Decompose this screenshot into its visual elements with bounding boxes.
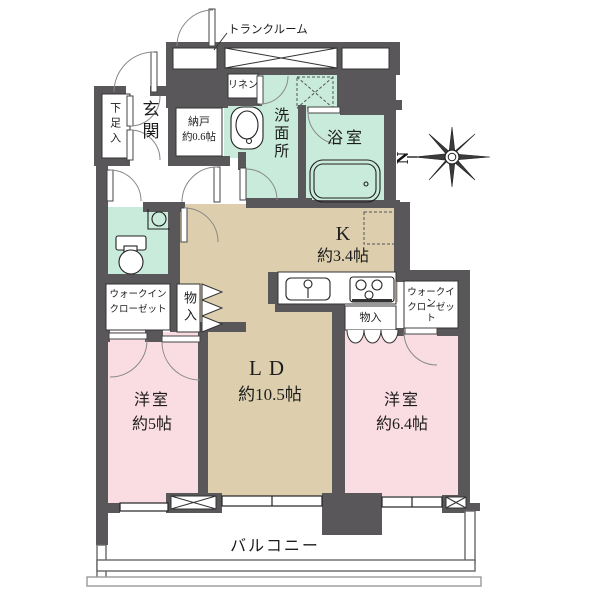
wic-left-label-1: ウォークイン bbox=[106, 290, 170, 301]
bathroom-floor bbox=[304, 110, 386, 206]
entry-door-leaf bbox=[151, 52, 157, 92]
wic-right-label-2: クローゼット bbox=[404, 303, 458, 325]
storage-room-label: 納戸 bbox=[176, 116, 222, 129]
closet-left-label: 物入 bbox=[181, 291, 196, 325]
trunk-room-label: トランクルーム bbox=[228, 24, 308, 37]
living-dining-label: LD bbox=[218, 356, 322, 380]
pillar bbox=[322, 493, 382, 535]
bedroom-right-floor bbox=[344, 328, 460, 496]
floor-plan-drawing: N bbox=[0, 0, 600, 600]
bathroom-label: 浴室 bbox=[316, 130, 376, 148]
kitchen-size: 約3.4帖 bbox=[303, 248, 383, 266]
compass-icon: N bbox=[393, 127, 490, 187]
living-dining-size: 約10.5帖 bbox=[208, 385, 332, 405]
trunk-door-leaf bbox=[209, 9, 215, 46]
genkan-label: 玄関 bbox=[139, 100, 159, 144]
washroom-label: 洗面所 bbox=[271, 107, 288, 161]
bedroom-right-size: 約6.4帖 bbox=[352, 416, 452, 434]
balcony-label: バルコニー bbox=[200, 538, 350, 556]
trunk-door-arc bbox=[177, 10, 213, 46]
folding-door-right bbox=[347, 330, 398, 343]
washbasin-icon bbox=[231, 107, 263, 149]
bedroom-left-label: 洋室 bbox=[104, 392, 200, 410]
storage-room-size: 約0.6帖 bbox=[173, 132, 225, 144]
bedroom-right-label: 洋室 bbox=[352, 392, 452, 410]
wic-left-label-2: クローゼット bbox=[106, 305, 170, 316]
closet-right-label: 物入 bbox=[345, 312, 396, 325]
folding-door-left bbox=[202, 284, 222, 332]
kitchen-label: K bbox=[318, 223, 368, 246]
bedroom-left-size: 約5帖 bbox=[104, 416, 200, 434]
trunk-room-box bbox=[173, 48, 217, 69]
floor-plan: N トランクルーム 玄関 下足入 納戸 約0.6帖 リネン 洗面所 浴室 K 約… bbox=[0, 0, 600, 600]
shoe-box-label: 下足入 bbox=[108, 102, 121, 147]
linen-label: リネン bbox=[228, 80, 258, 92]
compass-north-letter: N bbox=[393, 151, 412, 164]
